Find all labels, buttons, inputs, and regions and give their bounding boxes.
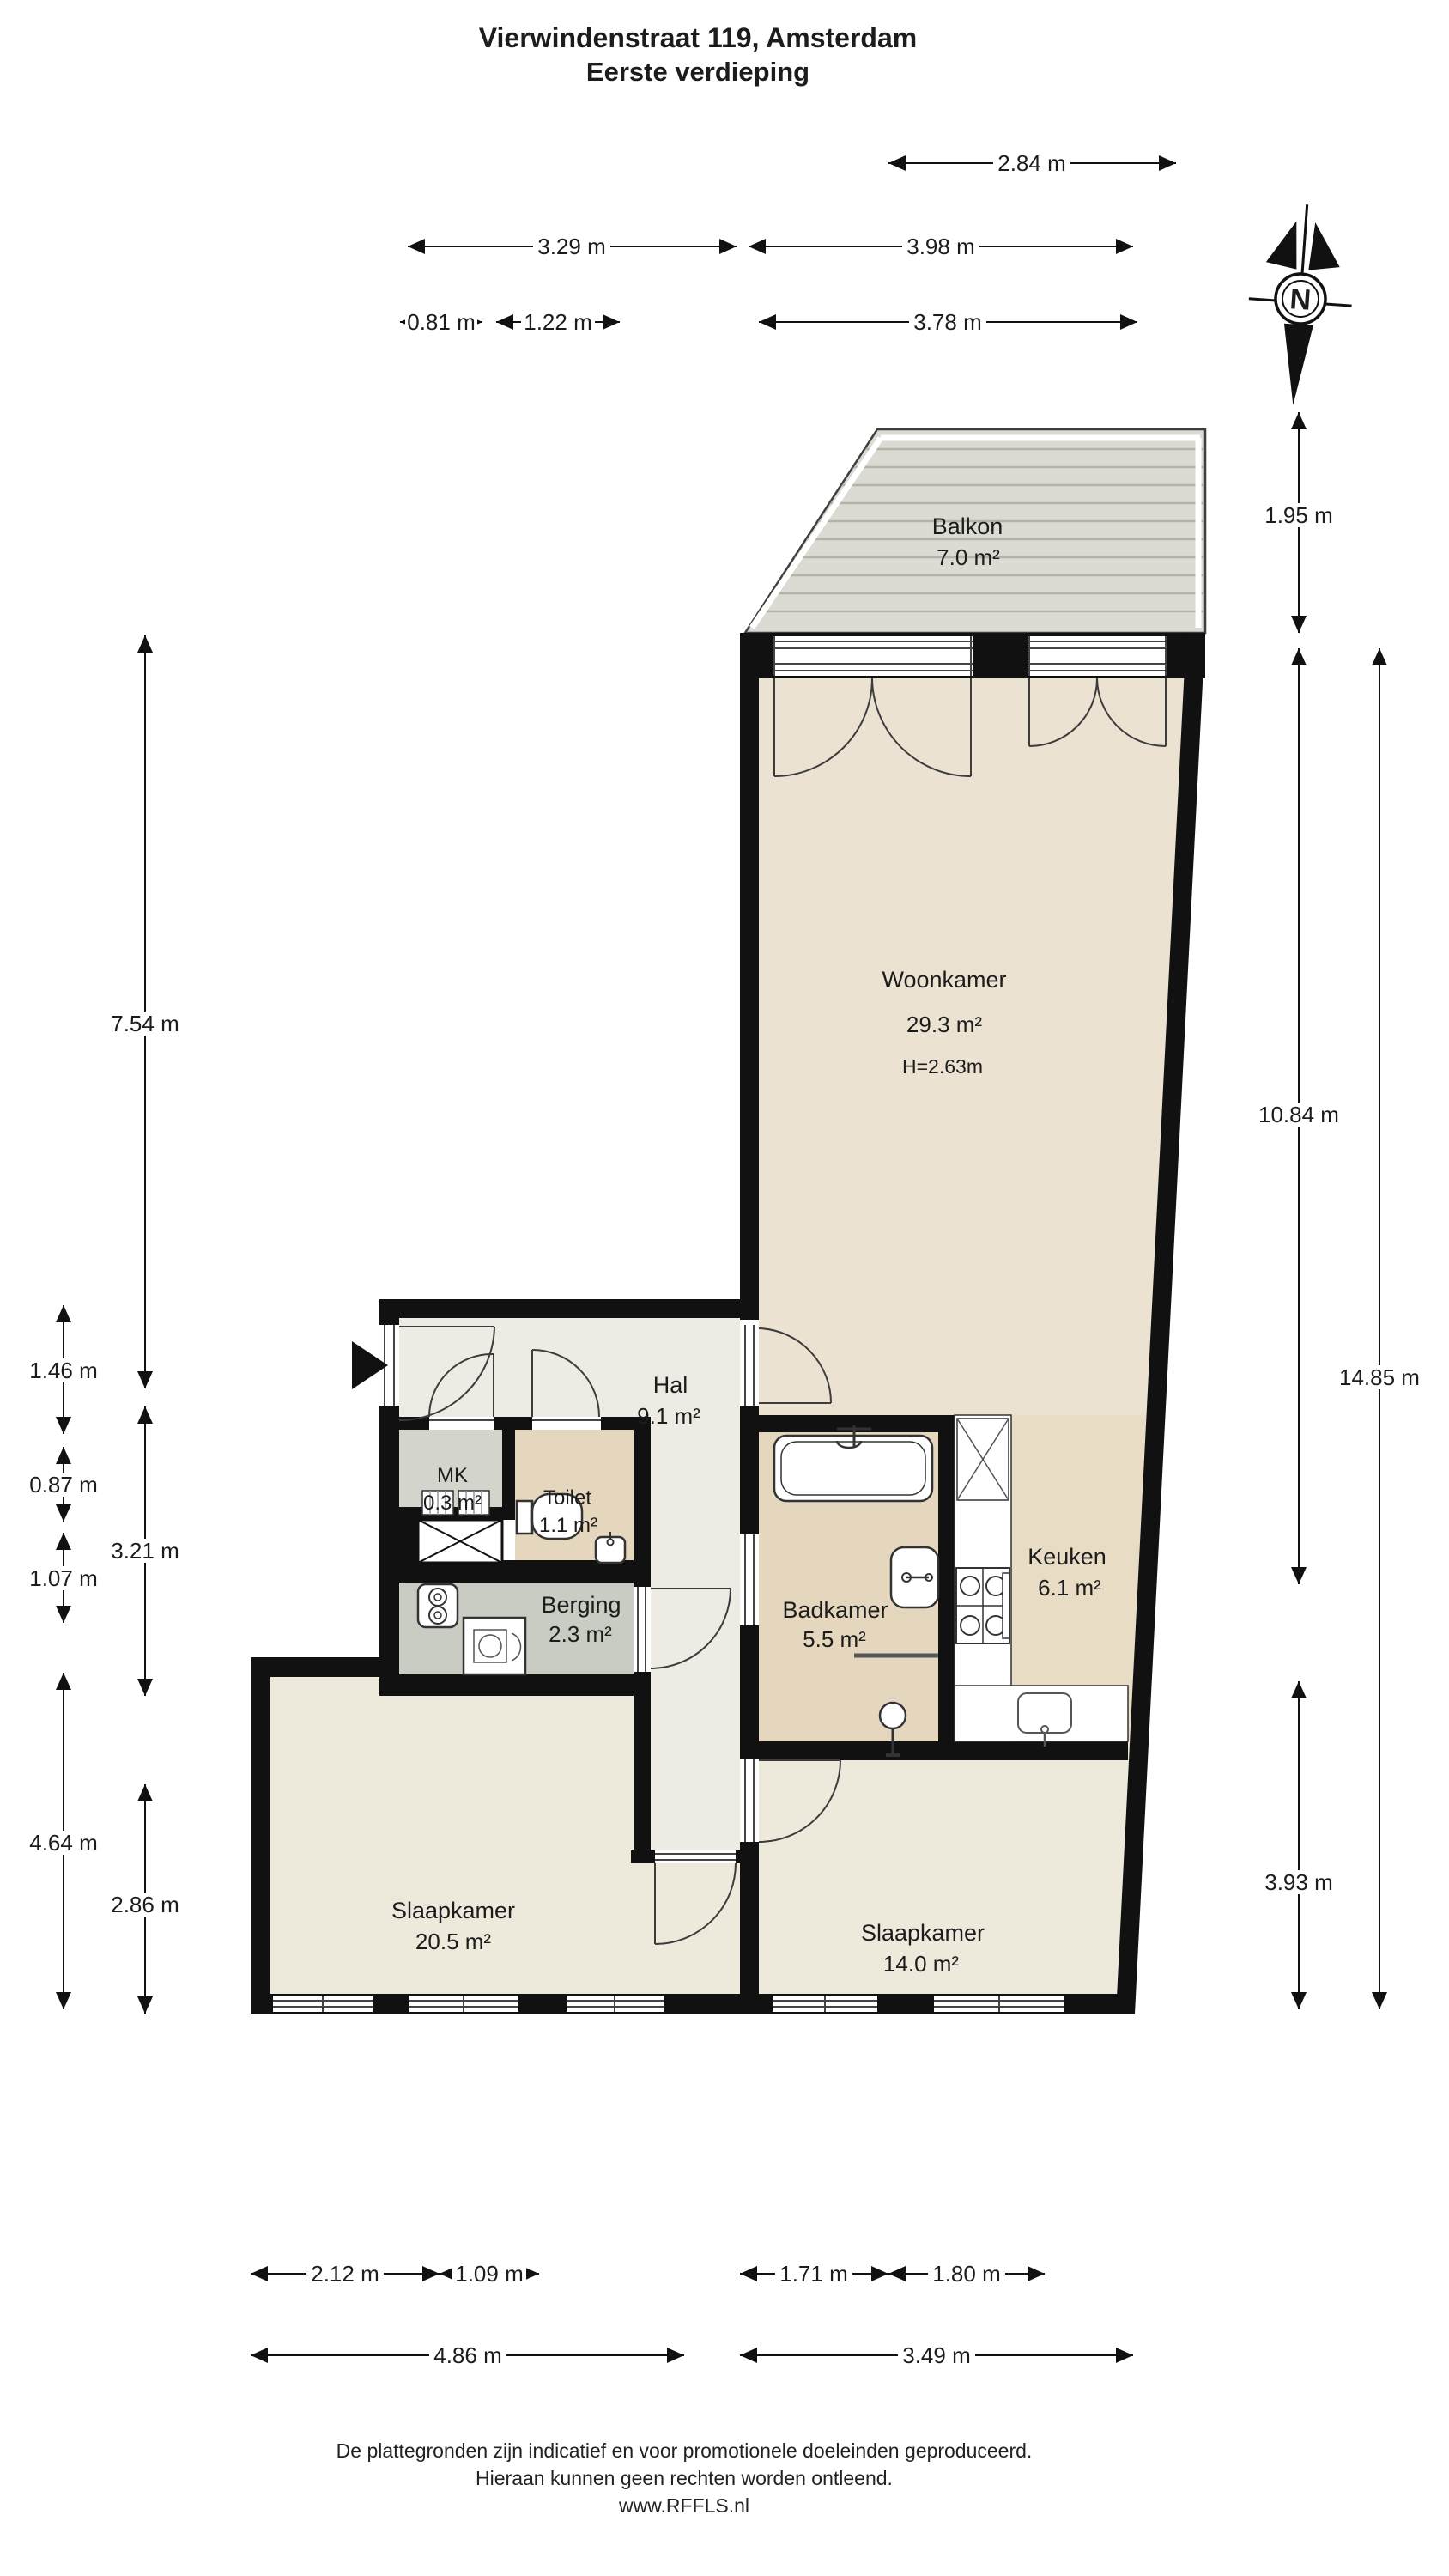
dim-label: 0.81 m (407, 309, 476, 335)
fridge-icon (957, 1419, 1009, 1500)
shaft-icon (418, 1520, 502, 1563)
floorplan-page: Vierwindenstraat 119, Amsterdam Eerste v… (0, 0, 1449, 2576)
dim-label: 7.54 m (111, 1011, 179, 1036)
dim-label: 2.12 m (311, 2261, 379, 2287)
room-label-mk: MK (437, 1464, 468, 1487)
footer-disclaimer-2: Hieraan kunnen geen rechten worden ontle… (476, 2467, 893, 2489)
dim-label: 2.86 m (111, 1892, 179, 1917)
dim-label: 3.93 m (1264, 1869, 1333, 1895)
dim-label: 0.87 m (29, 1472, 98, 1498)
dim-label: 14.85 m (1339, 1364, 1420, 1390)
room-label-slaapkamer-links: Slaapkamer (391, 1898, 515, 1923)
room-area-berging: 2.3 m² (549, 1621, 612, 1647)
bathroom-sink-icon (891, 1547, 938, 1607)
floorplan-canvas: Vierwindenstraat 119, Amsterdam Eerste v… (0, 0, 1449, 2576)
room-label-hal: Hal (653, 1372, 688, 1398)
dim-label: 1.95 m (1264, 502, 1333, 528)
page-subtitle: Eerste verdieping (586, 57, 809, 87)
room-area-slaapkamer-rechts: 14.0 m² (883, 1951, 959, 1977)
bathtub-icon (774, 1425, 932, 1501)
room-label-berging: Berging (541, 1592, 621, 1618)
footer: De plattegronden zijn indicatief en voor… (336, 2439, 1033, 2517)
boiler-icon (418, 1584, 458, 1627)
dim-label: 4.64 m (29, 1830, 98, 1856)
dim-label: 4.86 m (433, 2342, 502, 2368)
stove-icon (956, 1568, 1009, 1643)
dim-label: 1.07 m (29, 1565, 98, 1591)
room-label-keuken: Keuken (1028, 1544, 1106, 1570)
badkamer-door (740, 1534, 759, 1625)
dim-label: 3.29 m (537, 234, 606, 259)
room-area-woonkamer: 29.3 m² (906, 1012, 982, 1037)
dim-label: 1.71 m (779, 2261, 848, 2287)
dim-label: 3.78 m (913, 309, 982, 335)
dim-label: 2.84 m (997, 150, 1066, 176)
room-label-badkamer: Badkamer (782, 1597, 888, 1623)
dimensions: 2.84 m 3.29 m 3.98 m 0.81 m 1.22 m 3.78 … (25, 150, 1426, 2368)
dim-label: 3.49 m (902, 2342, 971, 2368)
page-title: Vierwindenstraat 119, Amsterdam (479, 22, 917, 53)
dim-label: 10.84 m (1258, 1102, 1339, 1127)
dim-label: 1.22 m (524, 309, 592, 335)
dim-label: 1.09 m (455, 2261, 524, 2287)
room-height-woonkamer: H=2.63m (902, 1055, 983, 1078)
toilet-sink-icon (596, 1532, 625, 1563)
compass-north-label: N (1288, 283, 1312, 317)
dim-label: 1.80 m (932, 2261, 1001, 2287)
room-area-mk: 0.3 m² (423, 1492, 482, 1515)
dim-label: 1.46 m (29, 1358, 98, 1383)
room-label-balkon: Balkon (932, 513, 1003, 539)
room-area-keuken: 6.1 m² (1038, 1575, 1101, 1601)
dim-label: 3.21 m (111, 1538, 179, 1564)
room-label-woonkamer: Woonkamer (882, 967, 1006, 993)
room-area-hal: 9.1 m² (637, 1403, 700, 1429)
room-area-balkon: 7.0 m² (937, 544, 1000, 570)
room-area-badkamer: 5.5 m² (803, 1626, 866, 1652)
dim-label: 3.98 m (906, 234, 975, 259)
room-area-slaapkamer-links: 20.5 m² (415, 1929, 491, 1954)
washer-icon (464, 1618, 525, 1674)
footer-disclaimer-1: De plattegronden zijn indicatief en voor… (336, 2439, 1033, 2462)
compass-icon: N (1241, 201, 1358, 409)
room-label-toilet: Toilet (543, 1486, 591, 1510)
room-label-slaapkamer-rechts: Slaapkamer (861, 1920, 985, 1946)
room-area-toilet: 1.1 m² (539, 1514, 597, 1537)
footer-website: www.RFFLS.nl (618, 2494, 749, 2517)
